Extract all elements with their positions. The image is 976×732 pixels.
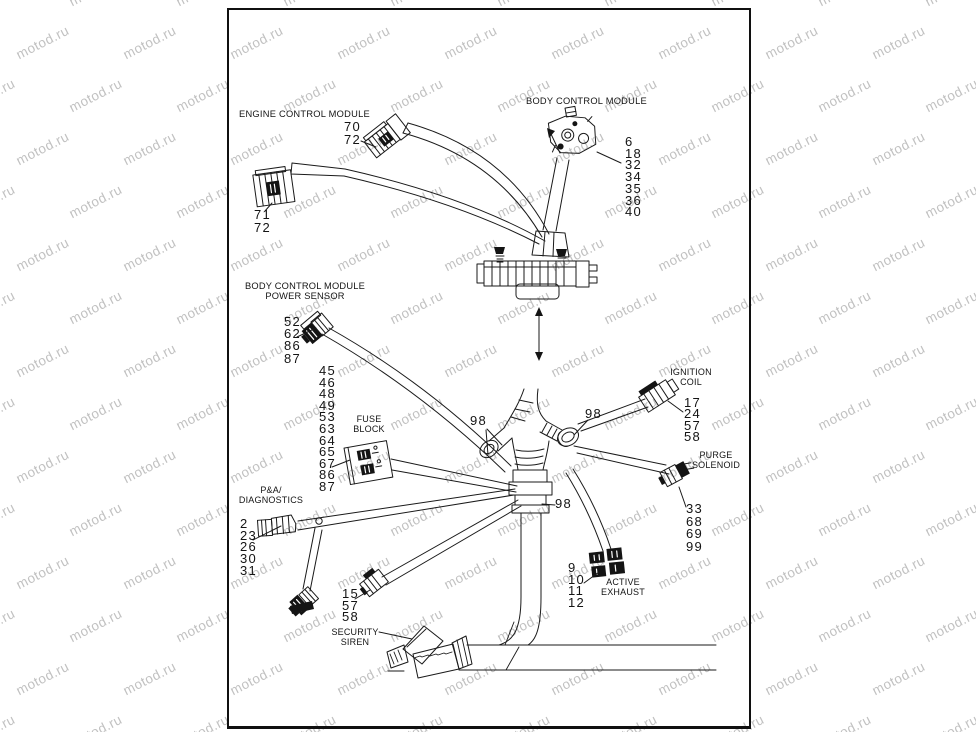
marker-98-bottom: 98 — [555, 498, 572, 510]
harness-cables — [291, 123, 669, 591]
wiring-diagram-page: motod.rumotod.rumotod.rumotod.rumotod.ru… — [0, 0, 976, 732]
callout-number: 87 — [319, 481, 336, 493]
security-siren-numbers: 155758 — [342, 588, 359, 623]
power-sensor-numbers: 52628687 — [284, 316, 301, 365]
security-siren-title: SECURITY SIREN — [328, 628, 382, 647]
bcm-title: BODY CONTROL MODULE — [526, 96, 647, 106]
active-exhaust-connector — [589, 547, 626, 577]
bcm-numbers: 6183234353640 — [625, 136, 642, 218]
fuse-block-device — [344, 441, 393, 485]
pa-diagnostics-connector — [257, 515, 296, 537]
pa-diagnostics-numbers: 223263031 — [240, 518, 257, 577]
ecm-connector-71-72 — [252, 166, 295, 207]
fuse-block-title: FUSE BLOCK — [345, 415, 393, 434]
harness-clip-ring — [316, 518, 322, 524]
frame-tube — [388, 645, 716, 671]
ignition-coil-title: IGNITION COIL — [662, 368, 720, 387]
ecm-connector-70-72 — [362, 113, 410, 159]
purge-solenoid-numbers: 33686999 — [686, 503, 703, 554]
active-exhaust-numbers: 9101112 — [568, 562, 585, 608]
callout-number: 72 — [344, 134, 361, 147]
marker-98-left: 98 — [470, 415, 487, 427]
callout-number: 58 — [684, 431, 701, 442]
callout-number: 40 — [625, 206, 642, 218]
callout-number: 58 — [342, 611, 359, 623]
callout-number: 31 — [240, 565, 257, 577]
callout-number: 99 — [686, 541, 703, 554]
security-siren-connector — [286, 586, 320, 619]
ecm-title: ENGINE CONTROL MODULE — [239, 109, 370, 119]
power-sensor-title: BODY CONTROL MODULE POWER SENSOR — [242, 282, 368, 301]
callout-number: 12 — [568, 597, 585, 609]
ecm-connector-a-numbers: 7072 — [344, 121, 361, 147]
marker-98-right: 98 — [585, 408, 602, 420]
siren-harness-connector — [354, 565, 388, 598]
plug-direction-arrow — [535, 307, 543, 361]
ignition-coil-numbers: 17245758 — [684, 397, 701, 443]
ecm-connector-b-numbers: 7172 — [254, 209, 271, 235]
fuse-block-numbers: 4546484953636465678687 — [319, 365, 336, 493]
purge-solenoid-title: PURGE SOLENOID — [684, 451, 748, 470]
callout-number: 72 — [254, 222, 271, 235]
active-exhaust-title: ACTIVE EXHAUST — [594, 578, 652, 597]
harness-junction — [477, 389, 582, 670]
harness-diagram-artwork — [0, 0, 976, 732]
callout-number: 87 — [284, 353, 301, 365]
harness-junction-block — [477, 231, 597, 299]
pa-diagnostics-title: P&A/ DIAGNOSTICS — [236, 486, 306, 505]
vertical-conduit — [499, 513, 521, 645]
